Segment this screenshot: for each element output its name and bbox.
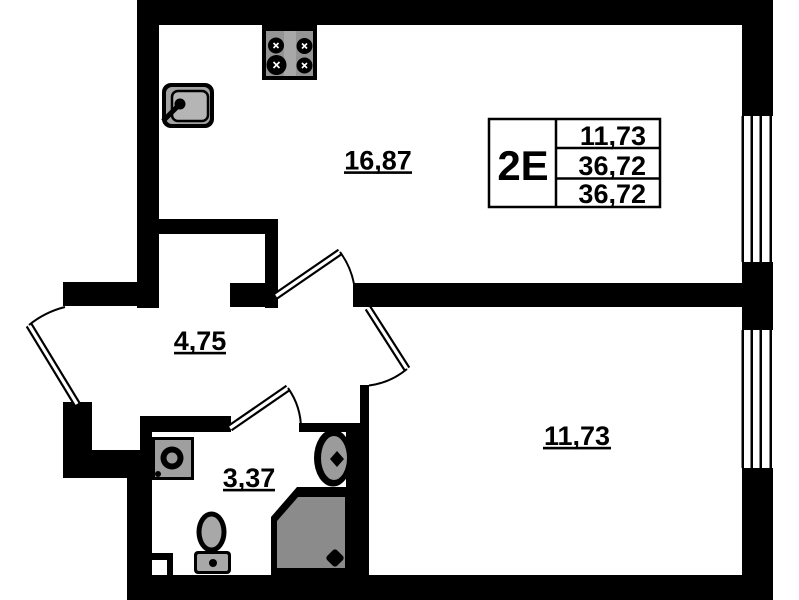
svg-text:2E: 2E (497, 142, 548, 189)
svg-text:36,72: 36,72 (578, 179, 646, 209)
svg-text:16,87: 16,87 (344, 146, 412, 176)
svg-text:11,73: 11,73 (544, 421, 610, 451)
svg-text:11,73: 11,73 (580, 121, 646, 151)
svg-text:3,37: 3,37 (223, 463, 276, 493)
svg-text:4,75: 4,75 (174, 326, 227, 356)
svg-text:36,72: 36,72 (578, 151, 646, 181)
